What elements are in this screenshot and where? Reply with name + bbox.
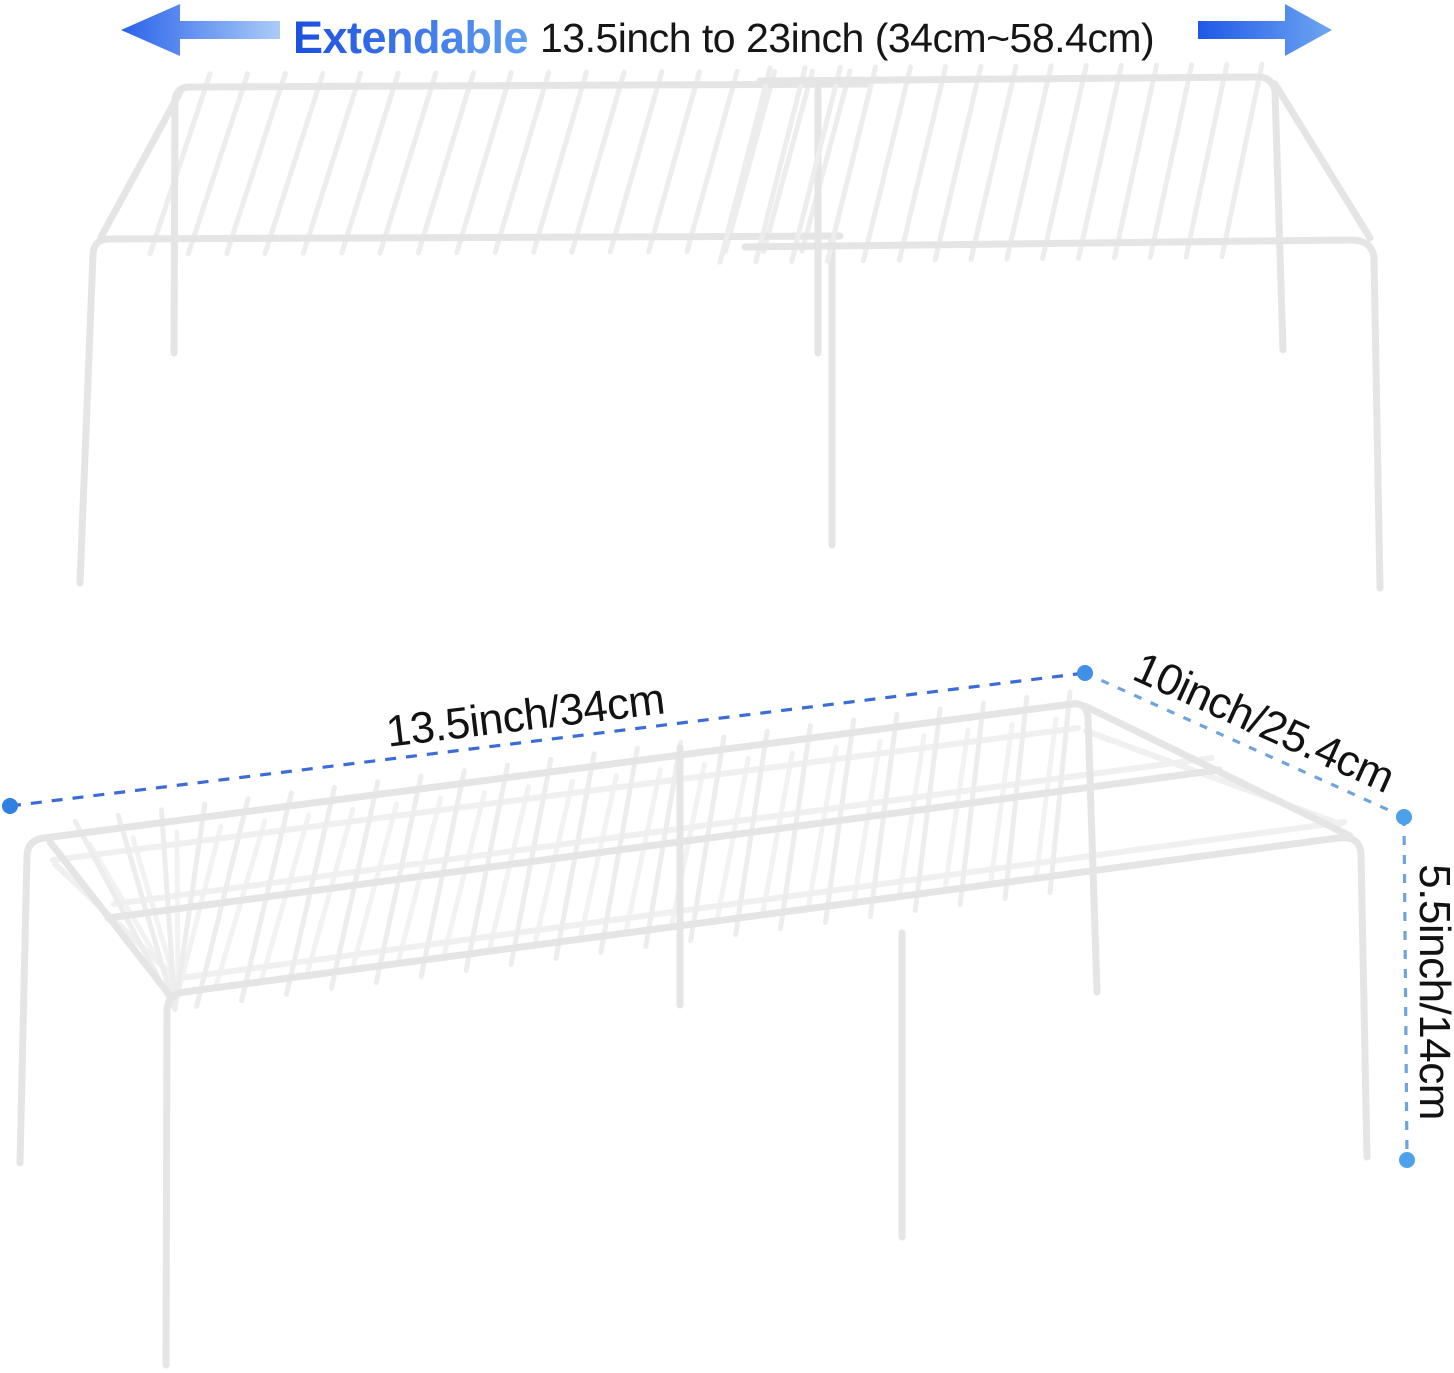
rack-wire bbox=[227, 74, 286, 254]
dimension-endpoint-dot bbox=[1396, 809, 1412, 825]
extendable-label: Extendable bbox=[293, 12, 528, 63]
size-range-label: 13.5inch to 23inch (34cm~58.4cm) bbox=[540, 15, 1154, 61]
dimension-endpoint-dot bbox=[2, 798, 18, 814]
rack-frame-bar bbox=[745, 240, 1380, 588]
rack-wire bbox=[1186, 64, 1227, 257]
rack-wire bbox=[1114, 65, 1156, 258]
rack-frame-bar bbox=[80, 236, 840, 583]
dimension-endpoint-dot bbox=[1077, 665, 1093, 681]
rack-wire bbox=[1150, 65, 1191, 258]
rack-wire bbox=[802, 71, 850, 251]
top-rack-extended-illustration bbox=[80, 64, 1380, 588]
rack-wire bbox=[150, 74, 210, 254]
rack-wire bbox=[935, 66, 981, 260]
rack-wire bbox=[177, 832, 178, 993]
extend-right-arrow-icon bbox=[1198, 4, 1332, 56]
extend-left-arrow-icon bbox=[121, 4, 280, 56]
rack-wire bbox=[1007, 66, 1051, 259]
height-dimension-label: 5.5inch/14cm bbox=[1410, 864, 1454, 1120]
header: Extendable 13.5inch to 23inch (34cm~58.4… bbox=[121, 4, 1332, 63]
rack-wire bbox=[971, 66, 1016, 259]
rack-frame-bar bbox=[101, 92, 180, 237]
length-dimension-label: 13.5inch/34cm bbox=[383, 674, 667, 756]
rack-wire bbox=[1079, 65, 1122, 258]
rack-wire bbox=[188, 74, 247, 254]
dimension-endpoint-dot bbox=[1399, 1152, 1415, 1168]
bottom-rack-compact-illustration bbox=[20, 692, 1367, 1365]
rack-wire bbox=[899, 67, 945, 261]
product-dimension-diagram: Extendable 13.5inch to 23inch (34cm~58.4… bbox=[0, 0, 1454, 1373]
rack-frame-bar bbox=[1275, 84, 1370, 238]
height-dimension-line bbox=[1404, 817, 1407, 1160]
rack-wire bbox=[1222, 64, 1262, 257]
rack-wire bbox=[1043, 65, 1087, 258]
rack-wire bbox=[764, 71, 813, 251]
